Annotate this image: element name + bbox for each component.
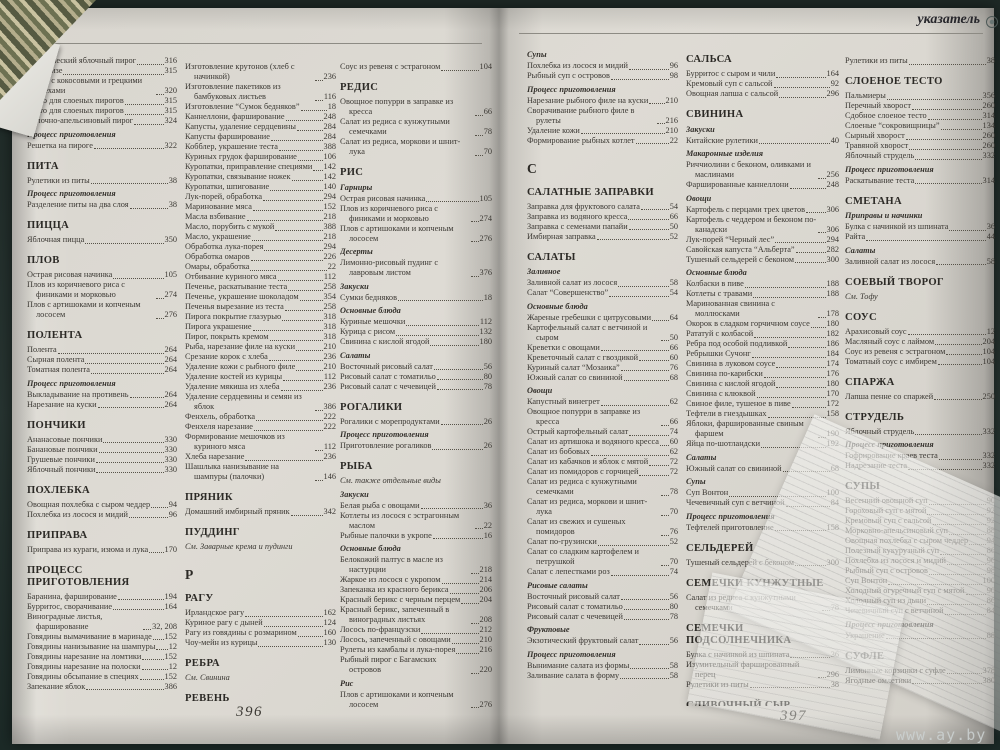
entry-title: Рулетики из питы <box>845 56 908 66</box>
entry-page-number: 306 <box>827 225 839 235</box>
entry-page-number: 320 <box>165 86 177 96</box>
index-entry: Овощное попурри в заправке из кресса66 <box>340 97 492 117</box>
entry-title: Куропатки, приправление специями <box>185 162 312 172</box>
entry-title: Курица с рисом <box>340 327 395 337</box>
dot-leader <box>254 430 323 431</box>
index-entry: Салат “Совершенство”54 <box>527 288 678 298</box>
index-entry: Удаление костей из курицы112 <box>185 372 336 382</box>
entry-title: Овощное попурри в заправке из кресса <box>340 97 474 117</box>
index-entry: Колбаски в пиве188 <box>686 279 839 289</box>
dot-leader <box>624 380 669 381</box>
entry-title: Травяной хворост <box>845 141 908 151</box>
entry-title: Свинина с клюквой <box>686 389 756 399</box>
entry-page-number: 315 <box>165 106 177 116</box>
index-section-heading: СВИНИНА <box>686 109 839 121</box>
index-entry: Сырный хворост260 <box>845 131 995 141</box>
dot-leader <box>795 262 826 263</box>
index-entry: Говядины нарезание на ломтики152 <box>27 652 177 662</box>
entry-title: Овощная похлебка с сыром чеддер <box>27 500 150 510</box>
dot-leader <box>103 442 163 443</box>
dot-leader <box>639 644 668 645</box>
index-entry: Салат из редиса, моркови и шнит-лука70 <box>527 497 678 517</box>
dot-leader <box>313 170 322 171</box>
index-entry: Курица с рисом132 <box>340 327 492 337</box>
entry-title: Банановые пончики <box>27 445 98 455</box>
dot-leader <box>621 370 669 371</box>
entry-page-number: 256 <box>827 170 839 180</box>
entry-title: Фаршированные каннеллони <box>686 180 789 190</box>
entry-page-number: 152 <box>324 202 336 212</box>
entry-page-number: 105 <box>480 194 492 204</box>
index-entry: Куропатки, связывание ножек142 <box>185 172 336 182</box>
entry-page-number: 248 <box>324 112 336 122</box>
dot-leader <box>143 629 151 630</box>
index-entry: Срезание корок с хлеба236 <box>185 352 336 362</box>
dot-leader <box>811 327 826 328</box>
entry-title: Заправка для фруктового салата <box>527 202 640 212</box>
entry-page-number: 50 <box>670 222 678 232</box>
entry-title: Рагу из говядины с розмарином <box>185 628 297 638</box>
entry-page-number: 236 <box>324 452 336 462</box>
entry-page-number: 218 <box>480 565 492 575</box>
index-letter-heading: С <box>527 161 678 176</box>
entry-title: Белокожий палтус в масле из настурции <box>340 555 470 575</box>
entry-title: Рататуй с колбасой <box>686 329 753 339</box>
index-entry: Перечный хворост260 <box>845 101 995 111</box>
entry-page-number: 26 <box>484 417 492 427</box>
dot-leader <box>98 407 164 408</box>
dot-leader <box>753 297 825 298</box>
entry-page-number: 306 <box>827 205 839 215</box>
index-entry: Рогалики с морепродуктами26 <box>340 417 492 427</box>
index-entry: Свинина с кислой ягодой180 <box>340 337 492 347</box>
entry-page-number: 264 <box>165 400 177 410</box>
index-entry: Яблочный струдель332 <box>845 427 995 437</box>
entry-title: Острая рисовая начинка <box>27 270 112 280</box>
dot-leader <box>247 220 323 221</box>
index-entry: Рисовый салат с чечевицей78 <box>527 612 678 622</box>
entry-page-number: 276 <box>480 234 492 244</box>
index-entry: Запеканка из красного берикса206 <box>340 585 492 595</box>
entry-title: Жаркое из лосося с укропом <box>340 575 441 585</box>
index-entry: Слоеные “сокровищницы”134 <box>845 121 995 131</box>
dot-leader <box>137 64 163 65</box>
index-subheading: Закуски <box>340 282 492 292</box>
dot-leader <box>113 609 164 610</box>
entry-title: Салат со сладким картофелем и петрушкой <box>527 547 660 567</box>
entry-page-number: 18 <box>484 293 492 303</box>
index-entry: Лук-порей “Черный лес”294 <box>686 235 839 245</box>
dot-leader <box>601 350 669 351</box>
entry-title: Запекание яблок <box>27 682 85 692</box>
index-entry: Томатный соус с имбирем104 <box>845 357 995 367</box>
index-entry: Салат из редиса, моркови и шнит-лука70 <box>340 137 492 157</box>
entry-page-number: 52 <box>670 232 678 242</box>
index-entry: Лимонно-рисовый пудинг с лавровым листом… <box>340 258 492 278</box>
entry-title: Заливание салата в форму <box>527 671 619 681</box>
entry-title: Печенья вырезание из теста <box>185 302 284 312</box>
entry-page-number: 66 <box>670 212 678 222</box>
entry-page-number: 260 <box>983 131 995 141</box>
entry-title: Колбаски в пиве <box>686 279 744 289</box>
entry-page-number: 294 <box>324 192 336 202</box>
index-entry: Салат из помидоров с горчицей72 <box>527 467 678 477</box>
dot-leader <box>96 462 164 463</box>
entry-title: Кобблер, украшение теста <box>185 142 278 152</box>
entry-title: Формирование рыбных котлет <box>527 136 635 146</box>
dot-leader <box>639 360 669 361</box>
index-entry: Куриных грудок фарширование106 <box>185 152 336 162</box>
entry-title: Овощное попурри в заправке из кресса <box>527 407 660 427</box>
index-entry: Бурритос, сворачивание164 <box>27 602 177 612</box>
dot-leader <box>928 119 982 120</box>
index-entry: Обработка лука-порея294 <box>185 242 336 252</box>
index-cross-reference: См. Тофу <box>845 292 995 302</box>
entry-page-number: 80 <box>484 372 492 382</box>
entry-page-number: 222 <box>324 412 336 422</box>
index-entry: Масляный соус с лаймом204 <box>845 337 995 347</box>
entry-title: Грушевые пончики <box>27 455 95 465</box>
entry-title: Слоеные “сокровищницы” <box>845 121 940 131</box>
index-entry: Омары, обработка22 <box>185 262 336 272</box>
entry-page-number: 146 <box>324 472 336 482</box>
dot-leader <box>776 77 825 78</box>
entry-page-number: 76 <box>670 527 678 537</box>
entry-title: Сумки бедняков <box>340 293 397 303</box>
entry-page-number: 142 <box>324 162 336 172</box>
dot-leader <box>757 397 826 398</box>
index-entry: Приготовление рогаликов26 <box>340 441 492 451</box>
index-subheading: Супы <box>527 50 678 60</box>
dot-leader <box>628 219 668 220</box>
entry-page-number: 315 <box>165 96 177 106</box>
index-entry: Сворачивание рыбного филе в рулеты216 <box>527 106 678 126</box>
index-entry: Рыбные палочки в укропе16 <box>340 531 492 541</box>
index-entry: Обработка омаров226 <box>185 252 336 262</box>
index-entry: Свинина с клюквой170 <box>686 389 839 399</box>
entry-title: Булка с начинкой из шпината <box>845 222 948 232</box>
entry-title: Лук-порей, обработка <box>185 192 262 202</box>
entry-title: Яблоки, фаршированные свиным фаршем <box>686 419 817 439</box>
index-entry: Куриные мешочки112 <box>340 317 492 327</box>
entry-title: Выкладывание на противень <box>27 390 129 400</box>
index-entry: Фенхеля нарезание222 <box>185 422 336 432</box>
entry-title: Рогалики с морепродуктами <box>340 417 440 427</box>
entry-title: Соус из ревеня с эстрагоном <box>340 62 440 72</box>
dot-leader <box>806 212 826 213</box>
entry-page-number: 104 <box>983 347 995 357</box>
dot-leader <box>281 390 323 391</box>
entry-page-number: 356 <box>983 91 995 101</box>
index-entry: Риччиолини с беконом, оливками и маслина… <box>686 160 839 180</box>
index-entry: Заправка для фруктового салата54 <box>527 202 678 212</box>
entry-page-number: 315 <box>165 66 177 76</box>
entry-title: Формирование мешочков из куриного мяса <box>185 432 314 452</box>
index-entry: Жареные гребешки с цитрусовыми64 <box>527 313 678 323</box>
dot-leader <box>442 583 479 584</box>
index-entry: Плов с артишоками и копченым лососем276 <box>27 300 177 320</box>
entry-page-number: 170 <box>827 389 839 399</box>
entry-page-number: 220 <box>480 665 492 675</box>
entry-title: Лимонно-рисовый пудинг с лавровым листом <box>340 258 470 278</box>
dot-leader <box>941 129 982 130</box>
entry-title: Лапша пенне со спаржей <box>845 392 933 402</box>
index-subheading: Фруктовые <box>527 625 678 635</box>
dot-leader <box>441 424 483 425</box>
entry-title: Печенье, раскатывание теста <box>185 282 287 292</box>
dot-leader <box>315 100 323 101</box>
dot-leader <box>441 70 478 71</box>
dot-leader <box>935 344 981 345</box>
dot-leader <box>153 639 164 640</box>
index-entry: Ананасовые пончики330 <box>27 435 177 445</box>
index-section-heading: СОЕВЫЙ ТВОРОГ <box>845 277 995 289</box>
entry-page-number: 96 <box>670 61 678 71</box>
dot-leader <box>939 459 982 460</box>
entry-title: Райта <box>845 232 865 242</box>
entry-title: Обработка омаров <box>185 252 250 262</box>
entry-title: Шашлыка нанизывание на шампуры (палочки) <box>185 462 314 482</box>
index-entry: Окорок в сладком горчичном соусе180 <box>686 319 839 329</box>
index-section-heading: ПИТА <box>27 161 177 173</box>
index-subheading: Салаты <box>340 351 492 361</box>
dot-leader <box>245 460 322 461</box>
entry-page-number: 194 <box>165 592 177 602</box>
dot-leader <box>936 264 986 265</box>
entry-page-number: 296 <box>827 89 839 99</box>
index-subheading: Основные блюда <box>340 306 492 316</box>
dot-leader <box>282 320 322 321</box>
dot-leader <box>775 242 825 243</box>
index-entry: Свинина в луковом соусе174 <box>686 359 839 369</box>
dot-leader <box>406 325 479 326</box>
index-entry: Салат со сладким картофелем и петрушкой7… <box>527 547 678 567</box>
index-entry: Нарезание рыбного филе на куски210 <box>527 96 678 106</box>
index-entry: Рагу из говядины с розмарином160 <box>185 628 336 638</box>
entry-title: Сдобное слоеное тесто <box>845 111 927 121</box>
dot-leader <box>601 405 669 406</box>
entry-title: Рулеты из камбалы и лука-порея <box>340 645 455 655</box>
entry-title: Масла взбивание <box>185 212 246 222</box>
dot-leader <box>278 280 323 281</box>
index-entry: Баранина, фарширование194 <box>27 592 177 602</box>
index-section-heading: ПИЦЦА <box>27 220 177 232</box>
entry-page-number: 258 <box>324 282 336 292</box>
index-entry: Салат с лепестками роз74 <box>527 567 678 577</box>
entry-title: Лук-порей “Черный лес” <box>686 235 774 245</box>
entry-page-number: 264 <box>165 365 177 375</box>
index-entry: Ирландское рагу162 <box>185 608 336 618</box>
index-entry: Похлебка из лосося и мидий96 <box>527 61 678 71</box>
entry-title: Куриные мешочки <box>340 317 405 327</box>
dot-leader <box>130 397 164 398</box>
entry-page-number: 208 <box>480 615 492 625</box>
dot-leader <box>125 104 164 105</box>
dot-leader <box>292 180 323 181</box>
entry-title: Ребра под особой подливкой <box>686 339 787 349</box>
entry-page-number: 342 <box>324 507 336 517</box>
dot-leader <box>915 183 981 184</box>
dot-leader <box>912 109 982 110</box>
entry-page-number: 58 <box>987 257 995 267</box>
entry-title: Удаление кожи <box>527 126 580 136</box>
entry-title: Пальмиеры <box>845 91 886 101</box>
entry-page-number: 38 <box>169 200 177 210</box>
dot-leader <box>297 130 323 131</box>
index-entry: Формирование рыбных котлет22 <box>527 136 678 146</box>
entry-page-number: 210 <box>324 362 336 372</box>
entry-title: Фенхель, обработка <box>185 412 255 422</box>
index-entry: Нарезание на куски264 <box>27 400 177 410</box>
index-entry: Удаление сердцевины и семян из яблок386 <box>185 392 336 412</box>
entry-title: Свинина с кислой ягодой <box>686 379 775 389</box>
entry-title: Яблочно-апельсиновый пирог <box>27 116 133 126</box>
dot-leader <box>269 360 323 361</box>
index-entry: Изготовление “Сумок бедняков”18 <box>185 102 336 112</box>
index-entry: Красный берикс с черным перцем204 <box>340 595 492 605</box>
index-entry: Свиное филе, тушеное в пиве172 <box>686 399 839 409</box>
dot-leader <box>253 330 323 331</box>
entry-page-number: 206 <box>480 585 492 595</box>
entry-title: Ананасовые пончики <box>27 435 102 445</box>
entry-title: Запеканка из красного берикса <box>340 585 449 595</box>
dot-leader <box>398 300 483 301</box>
index-entry: Заливание салата в форму58 <box>527 671 678 681</box>
dot-leader <box>475 135 483 136</box>
entry-page-number: 180 <box>827 319 839 329</box>
index-subheading: Процесс приготовления <box>845 165 995 175</box>
entry-page-number: 294 <box>324 242 336 252</box>
entry-page-number: 66 <box>670 417 678 427</box>
entry-page-number: 50 <box>670 333 678 343</box>
entry-page-number: 26 <box>484 441 492 451</box>
entry-title: Кремовый суп с сальсой <box>686 79 773 89</box>
index-entry: Салат из кабачков и яблок с мятой72 <box>527 457 678 467</box>
dot-leader <box>745 287 826 288</box>
index-entry: Кобблер, украшение теста388 <box>185 142 336 152</box>
index-entry: Заправка из водяного кресса66 <box>527 212 678 222</box>
entry-page-number: 264 <box>165 390 177 400</box>
index-cross-reference: См. Свинина <box>185 673 336 683</box>
index-entry: Острая рисовая начинка105 <box>27 270 177 280</box>
index-entry: Плов из коричневого риса с финиками и мо… <box>27 280 177 300</box>
index-subheading: Процесс приготовления <box>27 379 177 389</box>
index-entry: Удаление кожи с рыбного филе210 <box>185 362 336 372</box>
index-entry: Восточный рисовый салат56 <box>340 362 492 372</box>
dot-leader <box>134 124 163 125</box>
running-title: указатель <box>900 12 980 28</box>
index-entry: Овощное попурри в заправке из кресса66 <box>527 407 678 427</box>
index-column-4: СупыПохлебка из лосося и мидий96Рыбный с… <box>527 50 678 710</box>
entry-title: Плов из коричневого риса с финиками и мо… <box>340 204 470 224</box>
entry-page-number: 36 <box>987 222 995 232</box>
index-entry: Имбирная заправка52 <box>527 232 678 242</box>
index-entry: Китайские рулетики40 <box>686 136 839 146</box>
entry-page-number: 78 <box>670 487 678 497</box>
entry-title: Отбивание куриного мяса <box>185 272 277 282</box>
index-letter-heading: Р <box>185 567 336 582</box>
entry-page-number: 58 <box>670 661 678 671</box>
index-entry: Запекание яблок386 <box>27 682 177 692</box>
index-entry: Белокожий палтус в масле из настурции218 <box>340 555 492 575</box>
entry-page-number: 318 <box>324 312 336 322</box>
dot-leader <box>288 290 322 291</box>
dot-leader <box>396 335 478 336</box>
entry-page-number: 282 <box>827 245 839 255</box>
entry-page-number: 214 <box>480 575 492 585</box>
dot-leader <box>597 239 669 240</box>
watermark: www.ay.by <box>896 726 986 744</box>
entry-title: Рыба, нарезание филе на куски <box>185 342 295 352</box>
entry-page-number: 134 <box>983 121 995 131</box>
dot-leader <box>661 495 669 496</box>
entry-page-number: 236 <box>324 72 336 82</box>
index-entry: Рыбный пирог с Багамских островов220 <box>340 655 492 675</box>
entry-page-number: 294 <box>827 235 839 245</box>
index-entry: Картофель с чеддером и беконом по-канадс… <box>686 215 839 235</box>
dot-leader <box>130 208 168 209</box>
dot-leader <box>437 389 483 390</box>
dot-leader <box>629 229 669 230</box>
index-entry: Маринованная свинина с моллюсками178 <box>686 299 839 319</box>
entry-page-number: 74 <box>670 427 678 437</box>
entry-title: Виноградные листья, фарширование <box>27 612 142 632</box>
index-section-heading: САЛЬСА <box>686 54 839 66</box>
entry-page-number: 104 <box>983 357 995 367</box>
entry-page-number: 98 <box>670 71 678 81</box>
entry-title: Восточный рисовый салат <box>527 592 620 602</box>
entry-page-number: 210 <box>324 342 336 352</box>
index-subheading: Рис <box>340 679 492 689</box>
dot-leader <box>251 260 323 261</box>
index-entry: Куриный салат “Мозаика”76 <box>527 363 678 373</box>
index-entry: Креветочный салат с гвоздикой60 <box>527 353 678 363</box>
entry-page-number: 332 <box>983 427 995 437</box>
entry-page-number: 318 <box>324 332 336 342</box>
dot-leader <box>657 123 665 124</box>
index-section-heading: РОГАЛИКИ <box>340 402 492 414</box>
dot-leader <box>286 120 323 121</box>
index-entry: Красный берикс, запеченный в виноградных… <box>340 605 492 625</box>
entry-title: Приготовление рогаликов <box>340 441 431 451</box>
entry-page-number: 188 <box>827 279 839 289</box>
entry-page-number: 124 <box>324 618 336 628</box>
entry-page-number: 92 <box>831 79 839 89</box>
dot-leader <box>296 370 322 371</box>
index-entry: Пирога украшение318 <box>185 322 336 332</box>
index-entry: Лук-порей, обработка294 <box>185 192 336 202</box>
index-entry: Плов с артишоками и копченым лососем276 <box>340 224 492 244</box>
entry-title: Куропатки, связывание ножек <box>185 172 291 182</box>
index-section-heading: ПОХЛЕБКА <box>27 485 177 497</box>
entry-page-number: 36 <box>484 501 492 511</box>
dot-leader <box>156 94 164 95</box>
index-section-heading: РАГУ <box>185 593 336 605</box>
entry-title: Салат из помидоров с горчицей <box>527 467 638 477</box>
entry-page-number: 276 <box>480 700 492 709</box>
dot-leader <box>291 515 323 516</box>
dot-leader <box>142 669 168 670</box>
entry-title: Рисовый салат с чечевицей <box>527 612 623 622</box>
entry-title: Плов с артишоками и копченым лососем <box>27 300 155 320</box>
entry-title: Домашний имбирный пряник <box>185 507 290 517</box>
entry-page-number: 386 <box>324 402 336 412</box>
dot-leader <box>421 633 478 634</box>
dot-leader <box>790 188 826 189</box>
index-section-heading: САЛАТНЫЕ ЗАПРАВКИ <box>527 187 678 199</box>
entry-title: Жареные гребешки с цитрусовыми <box>527 313 651 323</box>
entry-page-number: 12 <box>169 662 177 672</box>
